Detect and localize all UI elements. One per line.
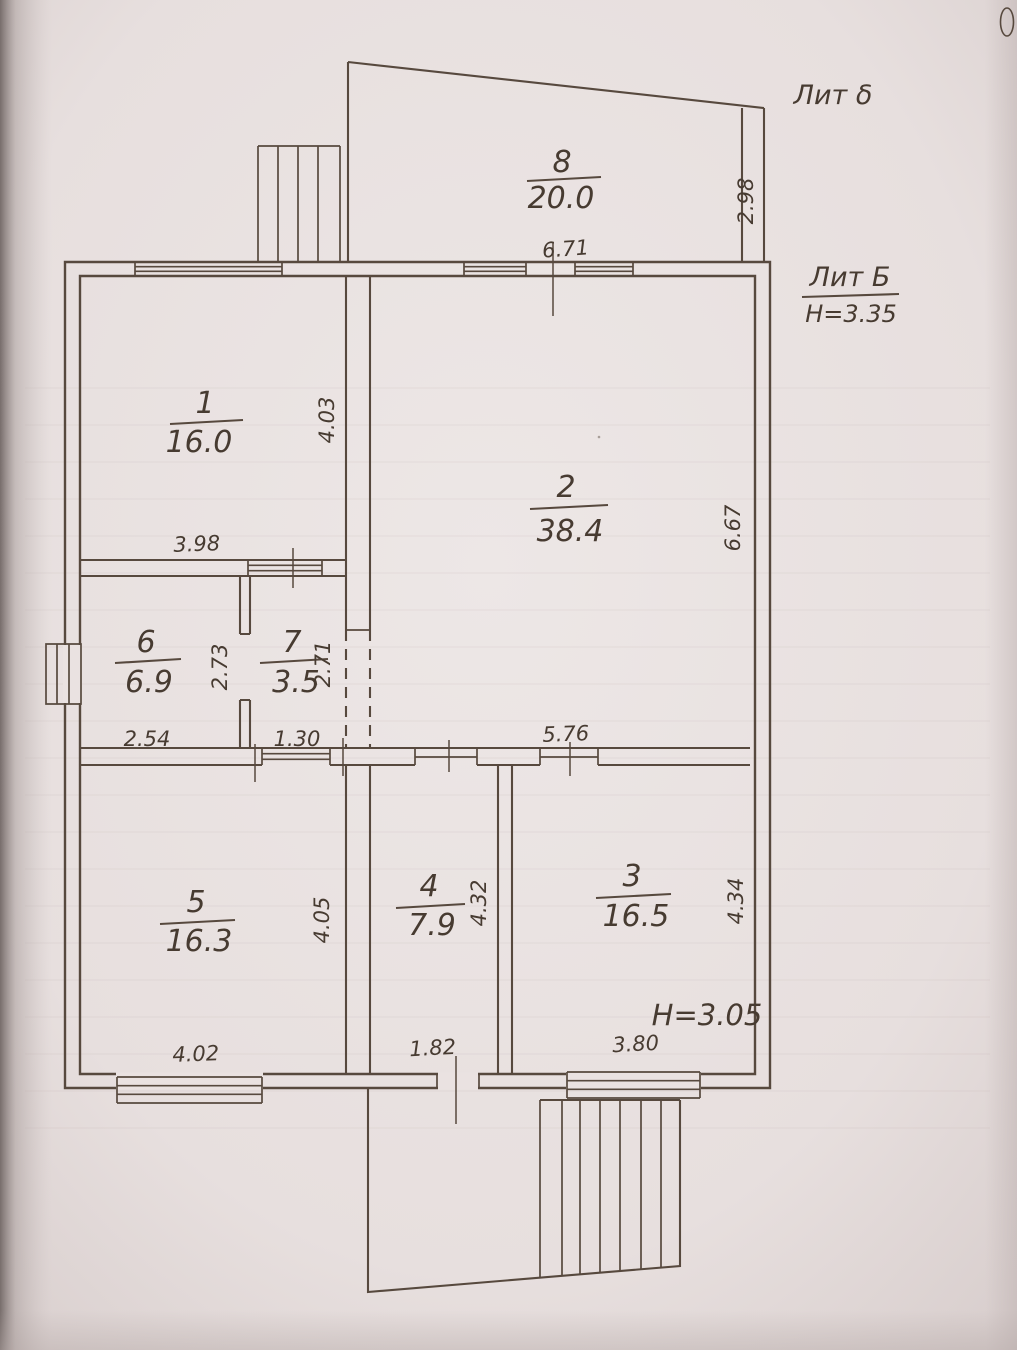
room-1-height-dim: 4.03 [315, 397, 339, 444]
room-8-area: 20.0 [528, 181, 595, 216]
litera-small-label: Лит δ [793, 80, 873, 111]
room-2-width-dim: 5.76 [542, 721, 590, 747]
room-8-number: 8 [552, 145, 571, 180]
paper-ruling-bleedthrough [25, 360, 990, 1150]
room-3-height-dim: 4.34 [724, 878, 748, 925]
room-4-height-dim: 4.32 [467, 880, 491, 927]
room-5-area: 16.3 [166, 924, 233, 959]
room-6-height-dim: 2.73 [208, 644, 232, 691]
room-2-height-dim: 6.67 [721, 504, 745, 551]
room-4-width-dim: 1.82 [409, 1035, 457, 1061]
floor-plan-canvas: 8 20.0 6.71 2.98 1 16.0 3.98 4.03 2 38.4… [0, 0, 1017, 1350]
room-8-width-dim: 6.71 [541, 235, 589, 262]
room-3-area: 16.5 [603, 899, 670, 934]
paper-speck [598, 436, 601, 439]
room-1-area: 16.0 [166, 425, 233, 460]
page-right-edge-shadow [985, 0, 1017, 1350]
room-4-area: 7.9 [408, 908, 456, 943]
room-6-width-dim: 2.54 [124, 727, 171, 751]
room-7-width-dim: 1.30 [274, 727, 321, 751]
room-7-number: 7 [282, 625, 301, 660]
room-7-height-dim: 2.71 [311, 641, 335, 688]
room-2-number: 2 [556, 470, 575, 505]
page-left-edge-shadow [0, 0, 52, 1350]
inner-height-label: Н=3.05 [652, 998, 763, 1032]
room-5-number: 5 [186, 885, 205, 920]
wall-clear-left-window [63, 645, 82, 703]
litera-main-height: Н=3.35 [805, 300, 897, 328]
page-bottom-edge-shadow [0, 1310, 1017, 1350]
room-3-number: 3 [622, 859, 641, 894]
room-3-width-dim: 3.80 [612, 1031, 660, 1057]
room-5-width-dim: 4.02 [172, 1041, 220, 1067]
wall-clear-bottom-window5 [116, 1073, 263, 1090]
room-6-number: 6 [136, 625, 155, 660]
room-5-height-dim: 4.05 [310, 897, 334, 944]
room-2-area: 38.4 [537, 514, 604, 549]
litera-main-label: Лит Б [809, 262, 891, 293]
room-4-number: 4 [419, 869, 438, 904]
floor-plan-photo: 8 20.0 6.71 2.98 1 16.0 3.98 4.03 2 38.4… [0, 0, 1017, 1350]
room-8-height-dim: 2.98 [734, 178, 758, 225]
room-1-number: 1 [195, 386, 214, 421]
wall-clear-exit-door [438, 1073, 478, 1090]
room-6-area: 6.9 [125, 665, 173, 700]
room-1-width-dim: 3.98 [173, 531, 221, 557]
